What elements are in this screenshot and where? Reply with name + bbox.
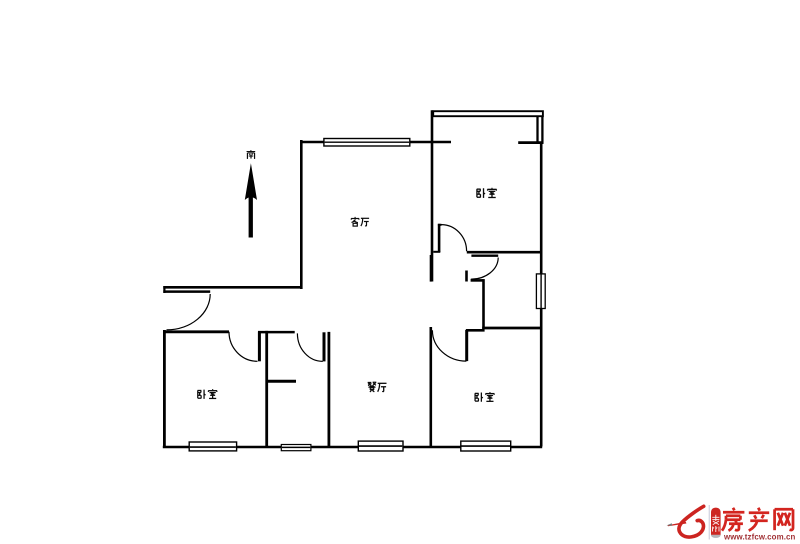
svg-text:www.tzfcw.com.cn: www.tzfcw.com.cn [723,532,796,541]
